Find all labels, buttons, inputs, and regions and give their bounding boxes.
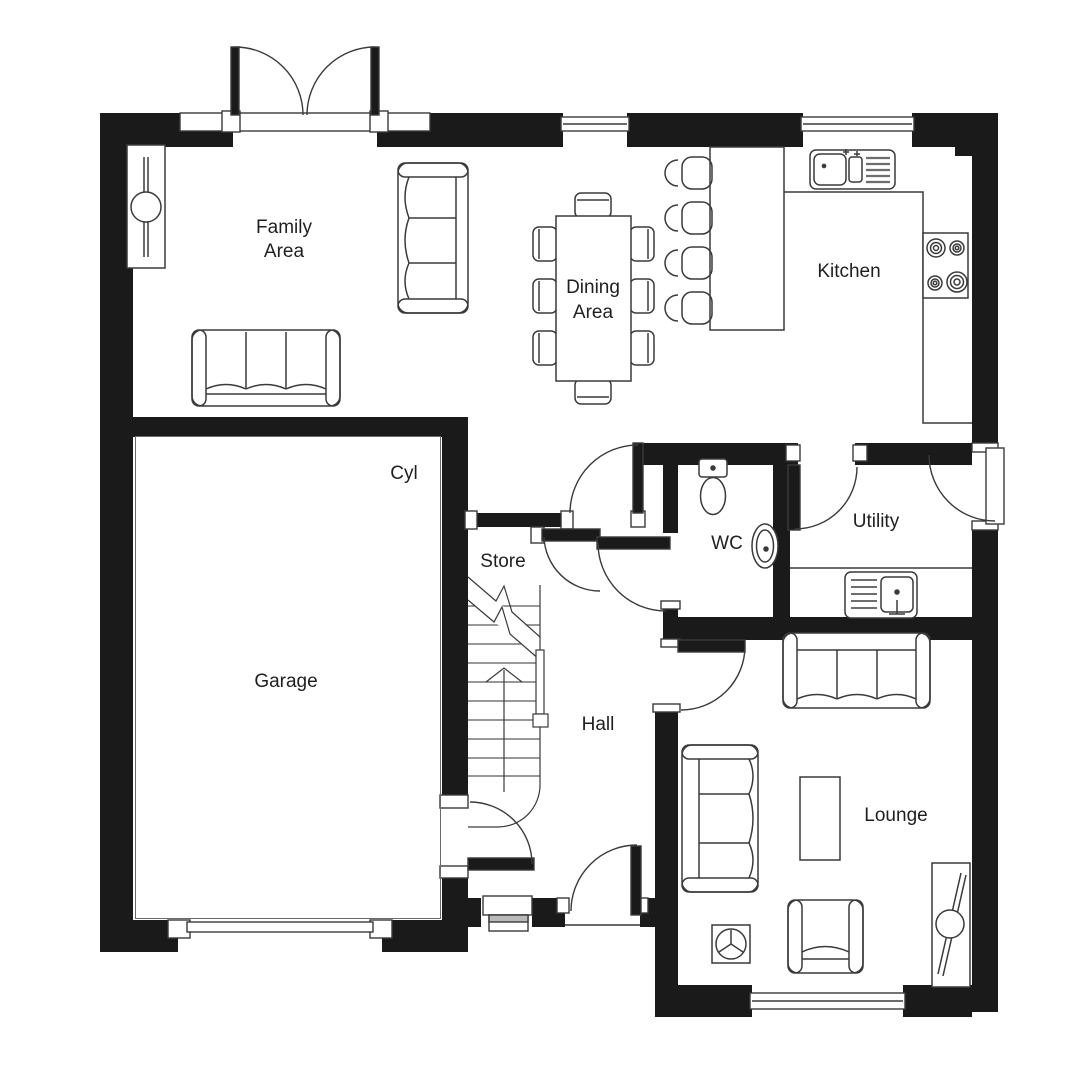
garage-hall-jamb-top [440, 795, 468, 808]
wall-hall-north [467, 513, 573, 527]
dining-chair-icon [630, 227, 654, 261]
kitchen-corridor-jamb-right [853, 445, 867, 461]
wall-wc-west-upper [663, 443, 678, 533]
dining-chair-icon [533, 331, 557, 365]
sofa-3-seat-icon [398, 163, 468, 313]
breakfast-bar-icon [710, 147, 784, 330]
floorplan-drawing: Family Area Dining Area Kitchen Cyl Gara… [0, 0, 1080, 1080]
porch-step-shading [489, 915, 528, 922]
room-label-utility: Utility [853, 511, 900, 532]
dining-chair-icon [533, 279, 557, 313]
tv-unit-icon [127, 145, 165, 268]
hall-north-jamb-right [561, 511, 573, 529]
sofa-3-seat-icon [783, 633, 930, 708]
dining-chair-icon [630, 279, 654, 313]
wall-lounge-west [655, 706, 678, 990]
floorplan-page: Family Area Dining Area Kitchen Cyl Gara… [0, 0, 1080, 1080]
room-label-dining-area-2: Area [573, 302, 614, 323]
room-label-kitchen: Kitchen [817, 261, 880, 282]
dining-table-icon [556, 216, 631, 381]
kitchen-sink-icon [810, 149, 895, 189]
opening-garage-hall-door [442, 808, 468, 866]
stairs-newel-post [533, 714, 548, 727]
room-label-hall: Hall [582, 714, 615, 735]
sofa-3-seat-icon [192, 330, 340, 406]
room-label-store: Store [480, 551, 525, 572]
room-label-cyl: Cyl [390, 463, 417, 484]
opening-front-door [565, 898, 640, 927]
wc-door-leaf [597, 537, 670, 549]
sofa-3-seat-icon [682, 745, 758, 892]
room-label-wc: WC [711, 533, 743, 554]
hall-north-jamb-left [465, 511, 477, 529]
kitchen-corridor-jamb-left [786, 445, 800, 461]
stairs-handrail [536, 650, 544, 714]
room-label-family-area-1: Family [256, 217, 312, 238]
room-label-garage: Garage [254, 671, 317, 692]
dining-chair-icon [575, 193, 611, 218]
coffee-table-icon [800, 777, 840, 860]
dining-door-leaf [633, 443, 643, 513]
dining-chair-icon [630, 331, 654, 365]
dining-chair-icon [575, 379, 611, 404]
room-label-lounge: Lounge [864, 805, 927, 826]
wash-basin-icon [752, 524, 778, 568]
garage-hall-door-leaf [468, 858, 534, 870]
lounge-west-wall-cap [653, 704, 680, 712]
hob-icon [923, 233, 968, 298]
french-door-sill [180, 113, 430, 131]
room-label-family-area-2: Area [264, 241, 305, 262]
dining-chair-icon [533, 227, 557, 261]
wc-pier-cap-top [661, 601, 680, 609]
french-door-leaf-right [371, 47, 379, 115]
wall-kitchen-south-east [855, 443, 972, 465]
front-door-jamb-left [557, 898, 569, 913]
wall-exterior-right [972, 113, 998, 1012]
porch-step-upper [483, 896, 532, 915]
side-table-icon [712, 925, 750, 963]
store-door-leaf [542, 529, 600, 541]
utility-door-leaf [986, 448, 1004, 524]
armchair-icon [788, 900, 863, 973]
kitchen-corridor-door-leaf [788, 465, 800, 530]
wall-kitchen-corner-notch [955, 147, 972, 156]
garage-door-panel [187, 922, 373, 932]
lounge-door-leaf [678, 640, 745, 652]
garage-hall-jamb-bottom [440, 866, 468, 878]
wc-pier-cap-bottom [661, 639, 680, 647]
french-door-leaf-left [231, 47, 239, 115]
utility-sink-icon [845, 572, 917, 618]
tv-unit-icon [932, 863, 970, 987]
front-door-leaf [631, 846, 641, 915]
room-label-dining-area-1: Dining [566, 277, 620, 298]
wall-garage-north [100, 417, 468, 437]
toilet-icon [699, 459, 727, 515]
